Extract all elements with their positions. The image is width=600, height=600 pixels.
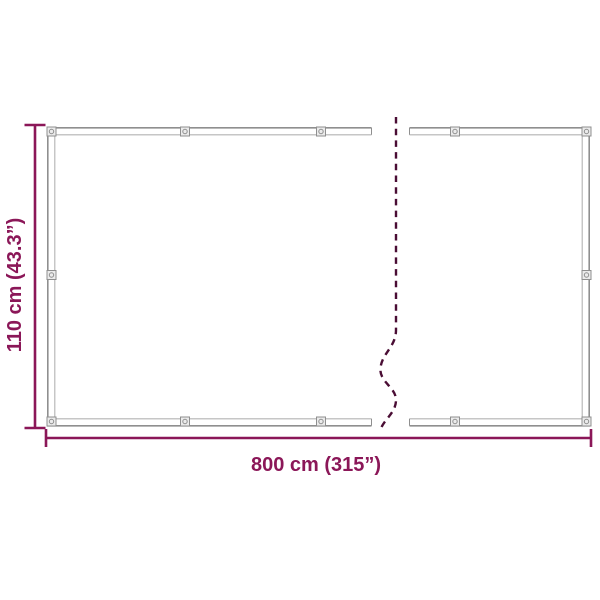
grommet-icon bbox=[181, 417, 190, 426]
tarp-left-hem-line bbox=[55, 135, 372, 419]
break-line bbox=[380, 117, 396, 432]
grommet-icon bbox=[47, 271, 56, 280]
tarp-left-section bbox=[48, 128, 372, 426]
width-dimension-label: 800 cm (315”) bbox=[251, 454, 381, 476]
grommet-icon bbox=[181, 127, 190, 136]
width-dimension: 800 cm (315”) bbox=[46, 429, 591, 476]
grommet-icon bbox=[582, 127, 591, 136]
grommet-icon bbox=[582, 417, 591, 426]
tarp-right-hem-line bbox=[410, 135, 583, 419]
grommet-icon bbox=[317, 127, 326, 136]
tarp-left-outer-edge bbox=[48, 128, 372, 426]
diagram-canvas: 110 cm (43.3”) 800 cm (315”) bbox=[0, 0, 600, 600]
grommet-icon bbox=[47, 127, 56, 136]
product-dimension-diagram: 110 cm (43.3”) 800 cm (315”) bbox=[0, 0, 600, 600]
tarp-right-outer-edge bbox=[410, 128, 590, 426]
tarp-right-section bbox=[410, 128, 590, 426]
grommet-icon bbox=[317, 417, 326, 426]
grommet-icon bbox=[47, 417, 56, 426]
grommet-icon bbox=[451, 417, 460, 426]
grommet-icon bbox=[582, 271, 591, 280]
height-dimension: 110 cm (43.3”) bbox=[4, 125, 46, 428]
height-dimension-label: 110 cm (43.3”) bbox=[4, 218, 26, 353]
grommet-icon bbox=[451, 127, 460, 136]
grommets bbox=[47, 127, 591, 426]
